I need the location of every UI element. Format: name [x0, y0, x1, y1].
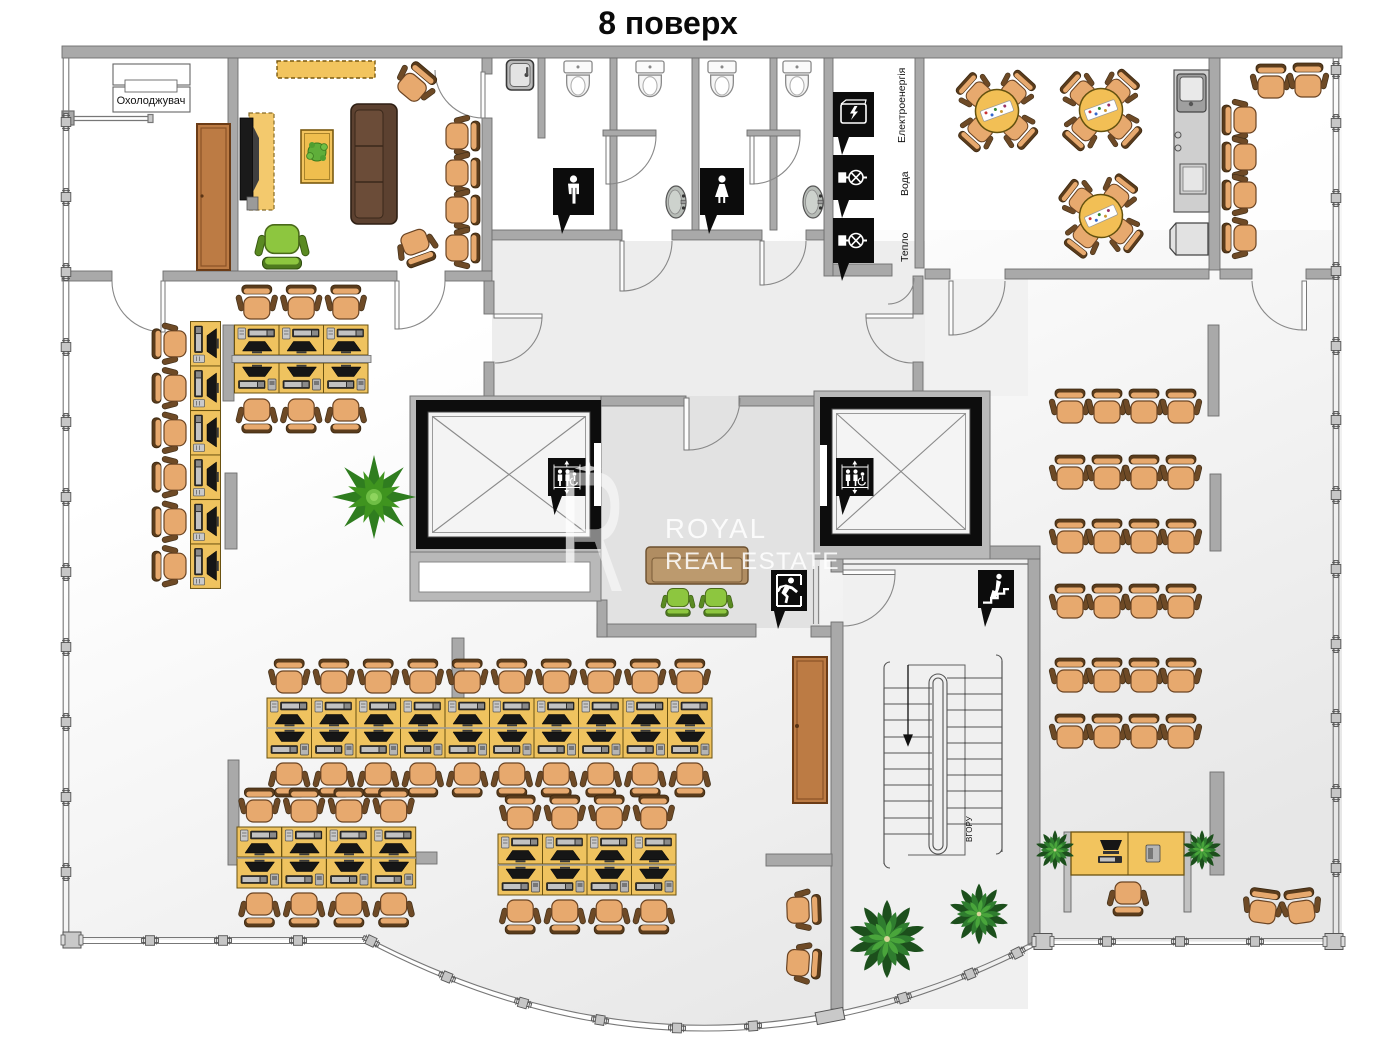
svg-text:Тепло: Тепло	[899, 232, 911, 262]
svg-text:ВГОРУ: ВГОРУ	[965, 815, 974, 842]
svg-text:ROYAL: ROYAL	[665, 513, 767, 544]
svg-text:Охолоджувач: Охолоджувач	[117, 95, 186, 107]
svg-text:REAL ESTATE: REAL ESTATE	[665, 548, 840, 575]
svg-text:Електроенергія: Електроенергія	[896, 68, 908, 143]
svg-text:Вода: Вода	[899, 171, 911, 196]
svg-text:8 поверх: 8 поверх	[598, 5, 738, 41]
